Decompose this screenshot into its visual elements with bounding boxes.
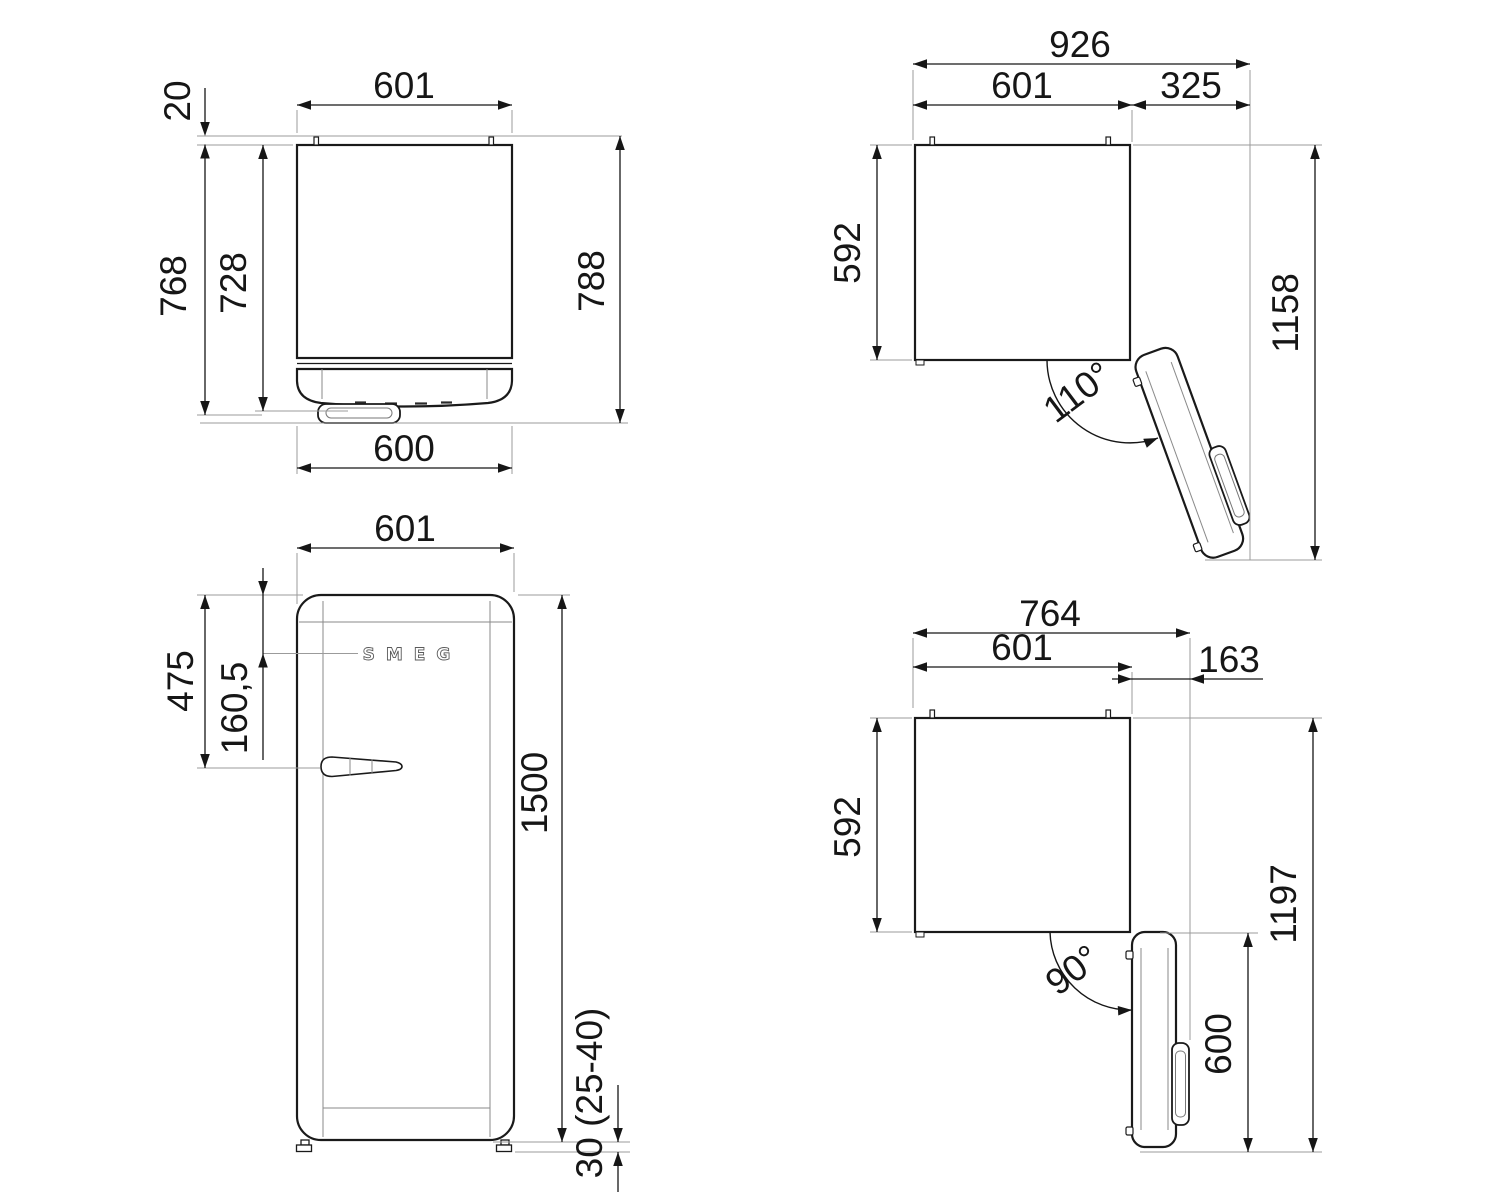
- dim-label-depth-total: 768: [153, 255, 194, 317]
- view-top-plan-door-90: 764 601 163 592 600 1197 90°: [827, 593, 1322, 1152]
- dim-label-door-extension: 163: [1198, 639, 1260, 680]
- view-front: SMEG: [160, 508, 630, 1192]
- dim-label-width: 601: [374, 508, 436, 549]
- hinge-pin: [1106, 710, 1111, 718]
- dim-label-width-top: 601: [373, 65, 435, 106]
- dim-label-feet-height: 30 (25-40): [569, 1008, 610, 1179]
- open-door-110: [1126, 340, 1259, 564]
- hinge-pin: [314, 137, 319, 145]
- open-door-90: [1126, 932, 1189, 1147]
- hinge-pin: [489, 137, 494, 145]
- dim-label-door-angle: 90°: [1038, 937, 1107, 1003]
- door-handle-top-view: [318, 404, 400, 423]
- dim-label-pin-protrusion: 20: [157, 80, 198, 121]
- dim-label-overall-depth: 1158: [1265, 273, 1306, 353]
- door-top-view: [297, 369, 512, 407]
- dim-label-door-angle: 110°: [1036, 353, 1120, 430]
- dim-label-overall-depth: 1197: [1263, 864, 1304, 944]
- view-top-plan-closed: 601 20 768 728 788 600: [153, 65, 628, 474]
- dim-label-overall-width: 926: [1049, 24, 1111, 65]
- dim-label-logo-height: 160,5: [214, 662, 255, 755]
- view-top-plan-door-110: 926 601 325 592 1158 110°: [827, 24, 1322, 563]
- hinge-pin: [1106, 137, 1111, 145]
- fridge-body-top-view: [297, 145, 512, 358]
- hinge-pin: [930, 710, 935, 718]
- dim-label-handle-height: 475: [160, 650, 201, 712]
- dim-label-depth-with-handle: 788: [571, 250, 612, 312]
- dim-label-door-width: 600: [373, 428, 435, 469]
- fridge-body-top-view: [915, 718, 1130, 932]
- adjustable-feet: [297, 1140, 512, 1152]
- brand-logo: SMEG: [363, 645, 462, 665]
- dim-label-door-depth: 600: [1198, 1013, 1239, 1075]
- dim-label-body-width: 601: [991, 65, 1053, 106]
- dim-label-door-extension: 325: [1160, 65, 1222, 106]
- dim-label-height: 1500: [514, 752, 555, 834]
- fridge-front-outline: [297, 595, 514, 1140]
- dim-label-depth-body: 728: [213, 252, 254, 314]
- hinge-nub: [916, 360, 924, 365]
- hinge-nub: [916, 932, 924, 937]
- dim-label-body-depth: 592: [827, 796, 868, 858]
- dim-label-body-depth: 592: [827, 222, 868, 284]
- hinge-pin: [930, 137, 935, 145]
- dim-label-body-width: 601: [991, 627, 1053, 668]
- technical-drawing: 601 20 768 728 788 600: [0, 0, 1500, 1200]
- fridge-body-top-view: [915, 145, 1130, 360]
